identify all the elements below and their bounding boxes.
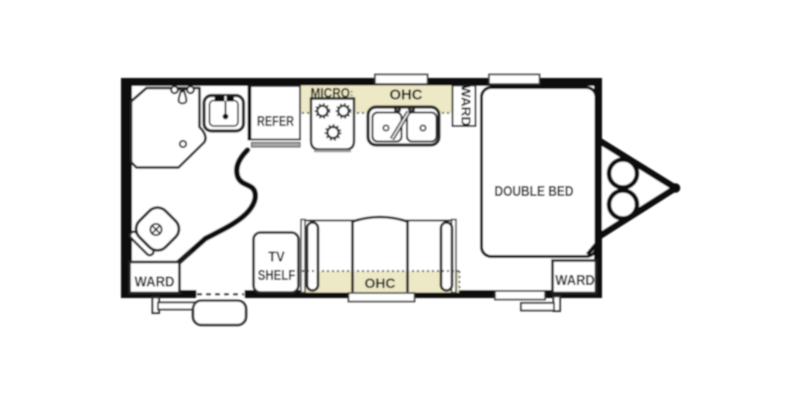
svg-text:OHC: OHC — [365, 275, 396, 291]
svg-text:WARD: WARD — [135, 274, 175, 291]
svg-text:WARD: WARD — [555, 272, 595, 289]
svg-text:WARD: WARD — [459, 85, 474, 127]
svg-text:DOUBLE BED: DOUBLE BED — [495, 183, 574, 200]
svg-text:OHC: OHC — [390, 87, 423, 104]
svg-text:SHELF: SHELF — [258, 268, 296, 284]
svg-text:REFER: REFER — [257, 114, 294, 130]
svg-text:TV: TV — [268, 250, 285, 266]
